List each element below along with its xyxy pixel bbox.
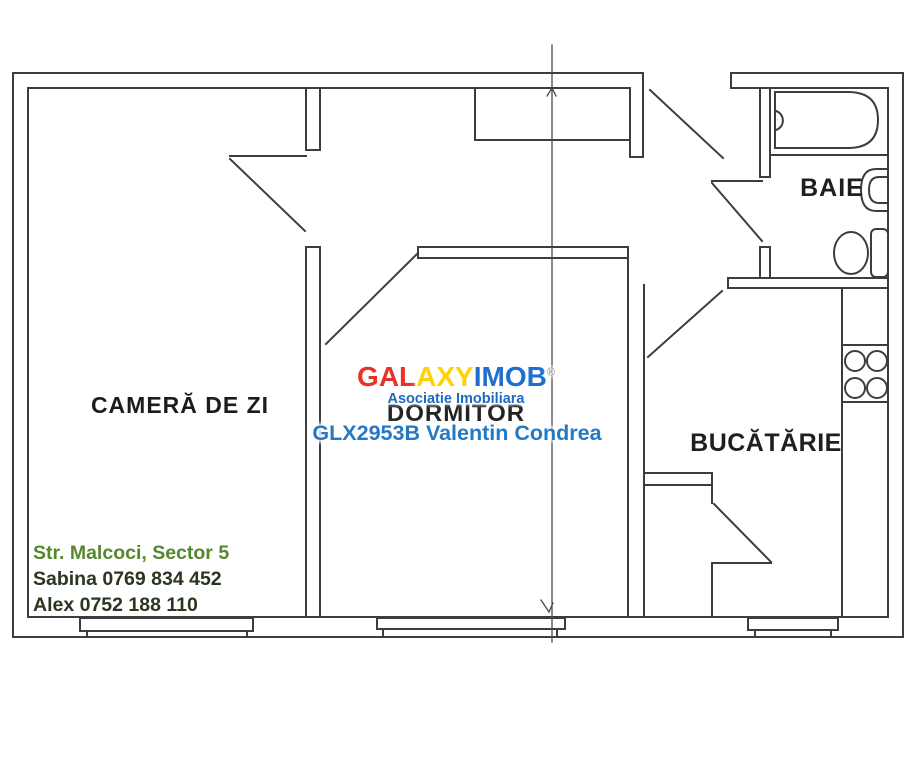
pantry-door-leaf <box>714 504 771 562</box>
sink-basin <box>869 177 888 203</box>
inner-walls-left-top <box>28 88 630 617</box>
bath-wall-lower-pillar <box>760 247 770 278</box>
entry-door-swing <box>650 90 723 158</box>
floorplan-image: CAMERĂ DE ZI DORMITOR BAIE BUCĂTĂRIE GAL… <box>0 0 917 768</box>
toilet-tank <box>871 229 888 277</box>
stove-burner <box>867 378 887 398</box>
bedroom-top-wall <box>418 247 628 258</box>
window-living <box>80 618 253 637</box>
section-line <box>541 45 556 642</box>
address-line: Str. Malcoci, Sector 5 <box>33 542 229 565</box>
bath-wall-upper-pillar <box>760 88 770 177</box>
bathtub-faucet <box>776 111 783 130</box>
toilet-bowl <box>834 232 868 274</box>
living-wall-upper-pillar <box>306 88 320 150</box>
pantry-counter-stub <box>644 473 712 485</box>
logo-part-gal: GAL <box>357 361 416 392</box>
window-bedroom <box>377 618 565 637</box>
sink-outer <box>861 169 888 211</box>
stove-burner <box>845 378 865 398</box>
logo-part-axy: AXY <box>416 361 474 392</box>
room-label-kitchen: BUCĂTĂRIE <box>690 429 842 458</box>
phone-line-alex: Alex 0752 188 110 <box>33 594 198 617</box>
entry-wall-stub <box>630 73 643 157</box>
watermark-tagline: Asociatie Imobiliara <box>388 391 525 407</box>
logo-part-imob: IMOB <box>474 361 547 392</box>
stove-burner <box>845 351 865 371</box>
window-kitchen <box>748 618 838 637</box>
registered-mark-icon: ® <box>547 367 555 379</box>
phone-line-sabina: Sabina 0769 834 452 <box>33 568 222 591</box>
watermark-agent-line: GLX2953B Valentin Condrea <box>312 421 601 446</box>
stove-burner <box>867 351 887 371</box>
watermark-logo: GALAXYIMOB® <box>357 361 555 393</box>
living-door-swing <box>230 159 305 231</box>
bathtub <box>775 92 878 148</box>
bedroom-door-leaf <box>326 253 418 344</box>
kitchen-counter <box>842 288 888 617</box>
bedroom-kitchen-wall <box>628 247 644 617</box>
bath-door-swing <box>712 183 762 241</box>
kitchen-top-wall <box>728 278 888 288</box>
room-label-bath: BAIE <box>800 174 864 203</box>
room-label-living: CAMERĂ DE ZI <box>91 392 269 419</box>
kitchen-door-leaf <box>648 291 722 357</box>
